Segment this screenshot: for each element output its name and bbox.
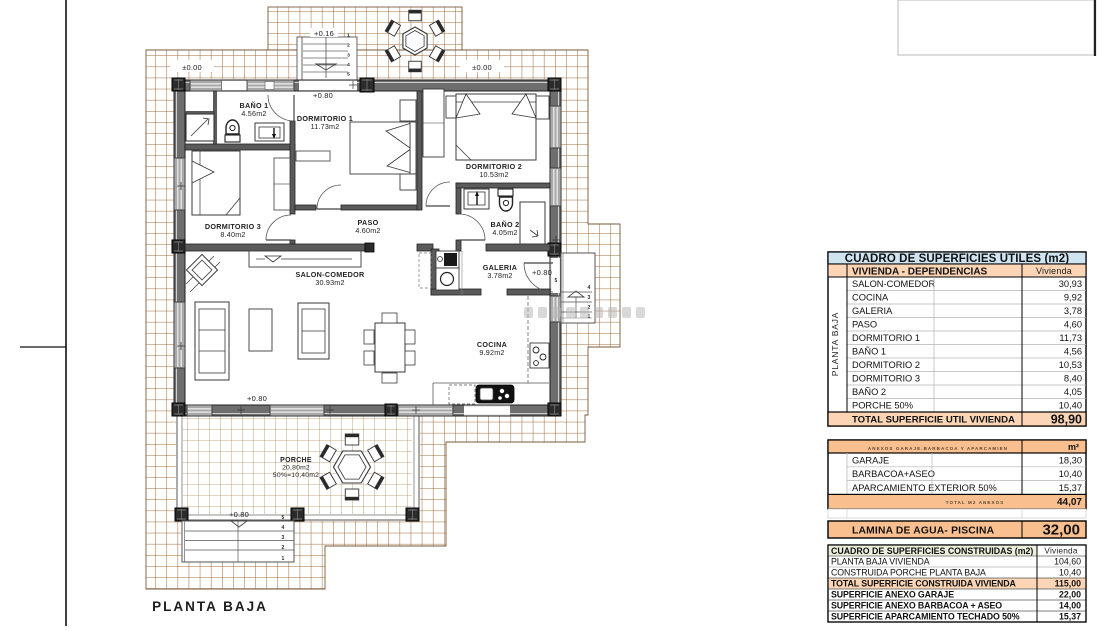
svg-text:115,00: 115,00 <box>1055 579 1082 589</box>
svg-text:8,40: 8,40 <box>1064 374 1082 384</box>
svg-text:32,00: 32,00 <box>1042 522 1080 539</box>
svg-text:15,37: 15,37 <box>1059 612 1081 622</box>
svg-text:CUADRO DE SUPERFICIES CONSTRUI: CUADRO DE SUPERFICIES CONSTRUIDAS (m2) <box>831 546 1033 556</box>
svg-text:3: 3 <box>588 295 591 301</box>
svg-text:8.40m2: 8.40m2 <box>220 230 245 239</box>
svg-text:Vivienda: Vivienda <box>1036 266 1072 276</box>
svg-text:ANEXOS GARAJE.BARBACOA Y APARC: ANEXOS GARAJE.BARBACOA Y APARCAMIEN <box>868 446 1008 451</box>
svg-text:PLANTA BAJA VIVIENDA: PLANTA BAJA VIVIENDA <box>831 557 930 567</box>
svg-text:SUPERFICIE APARCAMIENTO TECHAD: SUPERFICIE APARCAMIENTO TECHADO 50% <box>831 612 1020 622</box>
svg-text:SUPERFICIE ANEXO GARAJE: SUPERFICIE ANEXO GARAJE <box>831 590 954 600</box>
svg-text:1: 1 <box>347 33 350 39</box>
svg-text:3.78m2: 3.78m2 <box>487 271 512 280</box>
svg-text:4,60: 4,60 <box>1064 320 1082 330</box>
svg-text:9,92: 9,92 <box>1064 293 1082 303</box>
svg-text:+0.80: +0.80 <box>229 510 249 519</box>
svg-text:PORCHE: PORCHE <box>280 457 312 464</box>
svg-text:PLANTA BAJA: PLANTA BAJA <box>152 599 268 614</box>
svg-text:+0.80: +0.80 <box>313 91 333 100</box>
svg-text:5: 5 <box>282 515 285 521</box>
svg-text:DORMITORIO 1: DORMITORIO 1 <box>852 333 920 343</box>
svg-text:5: 5 <box>347 72 350 78</box>
svg-text:104,60: 104,60 <box>1054 557 1081 567</box>
svg-text:10,40: 10,40 <box>1059 568 1081 578</box>
svg-text:APARCAMIENTO EXTERIOR 50%: APARCAMIENTO EXTERIOR 50% <box>852 483 997 493</box>
svg-text:4.05m2: 4.05m2 <box>492 228 517 237</box>
svg-text:±0.00: ±0.00 <box>182 63 202 72</box>
svg-text:TOTAL SUPERFICIE UTIL VIVIENDA: TOTAL SUPERFICIE UTIL VIVIENDA <box>852 415 1015 426</box>
svg-text:CUADRO DE SUPERFICIES UTILES (: CUADRO DE SUPERFICIES UTILES (m2) <box>845 253 1069 265</box>
svg-text:30,93: 30,93 <box>1059 279 1082 289</box>
svg-text:30.93m2: 30.93m2 <box>315 278 344 287</box>
svg-text:10,53: 10,53 <box>1059 360 1082 370</box>
svg-text:COCINA: COCINA <box>852 293 889 303</box>
svg-text:20,80m2: 20,80m2 <box>282 465 310 472</box>
svg-text:BAÑO 2: BAÑO 2 <box>852 387 886 397</box>
svg-text:BAÑO 1: BAÑO 1 <box>852 347 886 357</box>
svg-text:+0.16: +0.16 <box>314 29 334 38</box>
svg-text:+0.80: +0.80 <box>247 394 267 403</box>
svg-text:4.56m2: 4.56m2 <box>241 109 266 118</box>
svg-text:22,00: 22,00 <box>1059 590 1081 600</box>
svg-text:1: 1 <box>282 556 285 562</box>
svg-text:50%=10,40m2: 50%=10,40m2 <box>273 472 319 479</box>
svg-text:LAMINA DE AGUA- PISCINA: LAMINA DE AGUA- PISCINA <box>852 526 995 537</box>
svg-text:4.60m2: 4.60m2 <box>355 226 380 235</box>
svg-text:3: 3 <box>347 53 350 59</box>
svg-text:4: 4 <box>282 525 285 531</box>
svg-text:98,90: 98,90 <box>1051 412 1082 426</box>
svg-text:4,05: 4,05 <box>1064 387 1082 397</box>
svg-text:3: 3 <box>282 535 285 541</box>
svg-text:PLANTA BAJA: PLANTA BAJA <box>830 312 840 376</box>
svg-text:14,00: 14,00 <box>1059 601 1081 611</box>
svg-text:44,07: 44,07 <box>1057 497 1082 508</box>
svg-text:15,37: 15,37 <box>1059 483 1082 493</box>
svg-text:TOTAL M2 ANEXOS: TOTAL M2 ANEXOS <box>946 500 1005 505</box>
svg-text:SALON-COMEDOR: SALON-COMEDOR <box>852 279 935 289</box>
svg-text:±0.00: ±0.00 <box>472 63 492 72</box>
svg-text:m²: m² <box>1068 442 1079 452</box>
svg-text:DORMITORIO 2: DORMITORIO 2 <box>852 360 920 370</box>
svg-text:PASO: PASO <box>852 320 877 330</box>
svg-text:4: 4 <box>588 285 591 291</box>
svg-text:18,30: 18,30 <box>1059 455 1082 465</box>
svg-text:10,40: 10,40 <box>1059 469 1082 479</box>
svg-text:5: 5 <box>555 278 558 284</box>
svg-text:2: 2 <box>347 43 350 49</box>
svg-text:CONSTRUIDA PORCHE PLANTA BAJA: CONSTRUIDA PORCHE PLANTA BAJA <box>831 568 986 578</box>
svg-text:DORMITORIO 3: DORMITORIO 3 <box>852 374 920 384</box>
svg-text:3,78: 3,78 <box>1064 306 1082 316</box>
svg-text:10,40: 10,40 <box>1059 401 1082 411</box>
svg-text:VIVIENDA - DEPENDENCIAS: VIVIENDA - DEPENDENCIAS <box>852 266 988 277</box>
svg-text:GALERIA: GALERIA <box>852 306 893 316</box>
svg-text:SUPERFICIE ANEXO BARBACOA + AS: SUPERFICIE ANEXO BARBACOA + ASEO <box>831 601 1002 611</box>
svg-text:GARAJE: GARAJE <box>852 455 889 465</box>
svg-text:PORCHE 50%: PORCHE 50% <box>852 401 913 411</box>
svg-text:4,56: 4,56 <box>1064 347 1082 357</box>
svg-text:10.53m2: 10.53m2 <box>479 170 508 179</box>
svg-text:BARBACOA+ASEO: BARBACOA+ASEO <box>852 469 935 479</box>
svg-text:+0.80: +0.80 <box>532 268 552 277</box>
svg-text:9.92m2: 9.92m2 <box>479 348 504 357</box>
svg-text:Vivienda: Vivienda <box>1044 546 1077 556</box>
svg-text:2: 2 <box>282 545 285 551</box>
svg-text:11.73m2: 11.73m2 <box>311 122 340 131</box>
svg-text:11,73: 11,73 <box>1059 333 1082 343</box>
svg-text:4: 4 <box>347 62 350 68</box>
svg-text:TOTAL SUPERFICIE CONSTRUIDA VI: TOTAL SUPERFICIE CONSTRUIDA VIVIENDA <box>831 579 1016 589</box>
